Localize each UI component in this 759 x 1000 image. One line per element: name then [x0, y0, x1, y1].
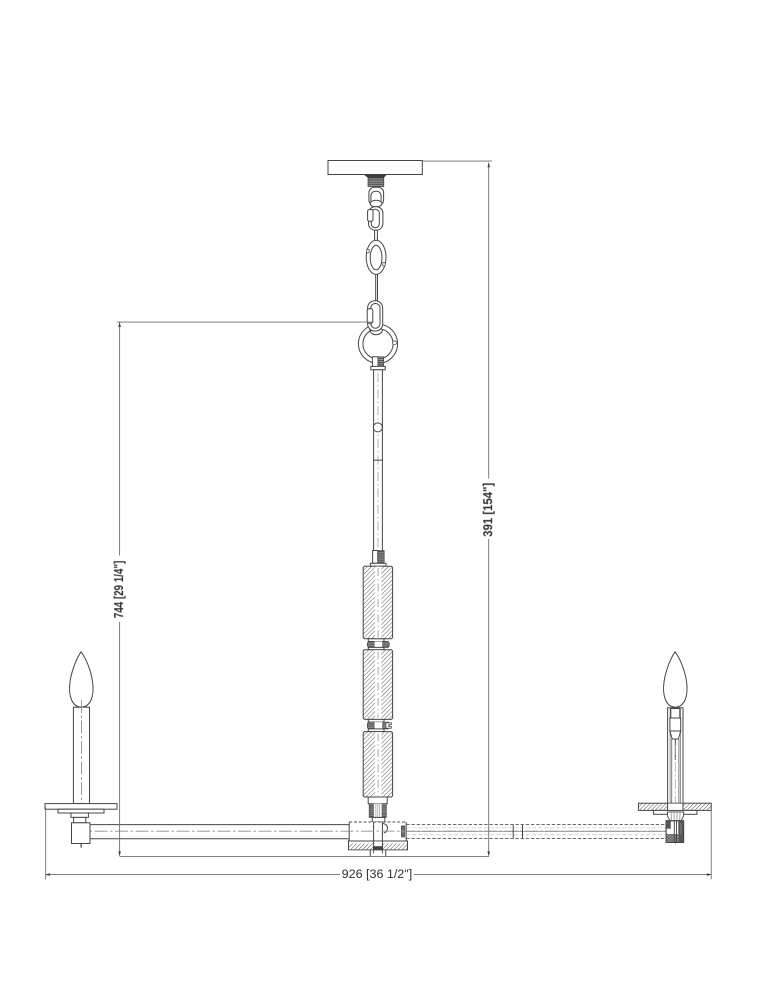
- svg-text:926 [36 1/2"]: 926 [36 1/2"]: [342, 867, 413, 881]
- svg-text:744 [29 1/4"]: 744 [29 1/4"]: [111, 561, 126, 619]
- svg-text:391 [154"]: 391 [154"]: [480, 483, 495, 537]
